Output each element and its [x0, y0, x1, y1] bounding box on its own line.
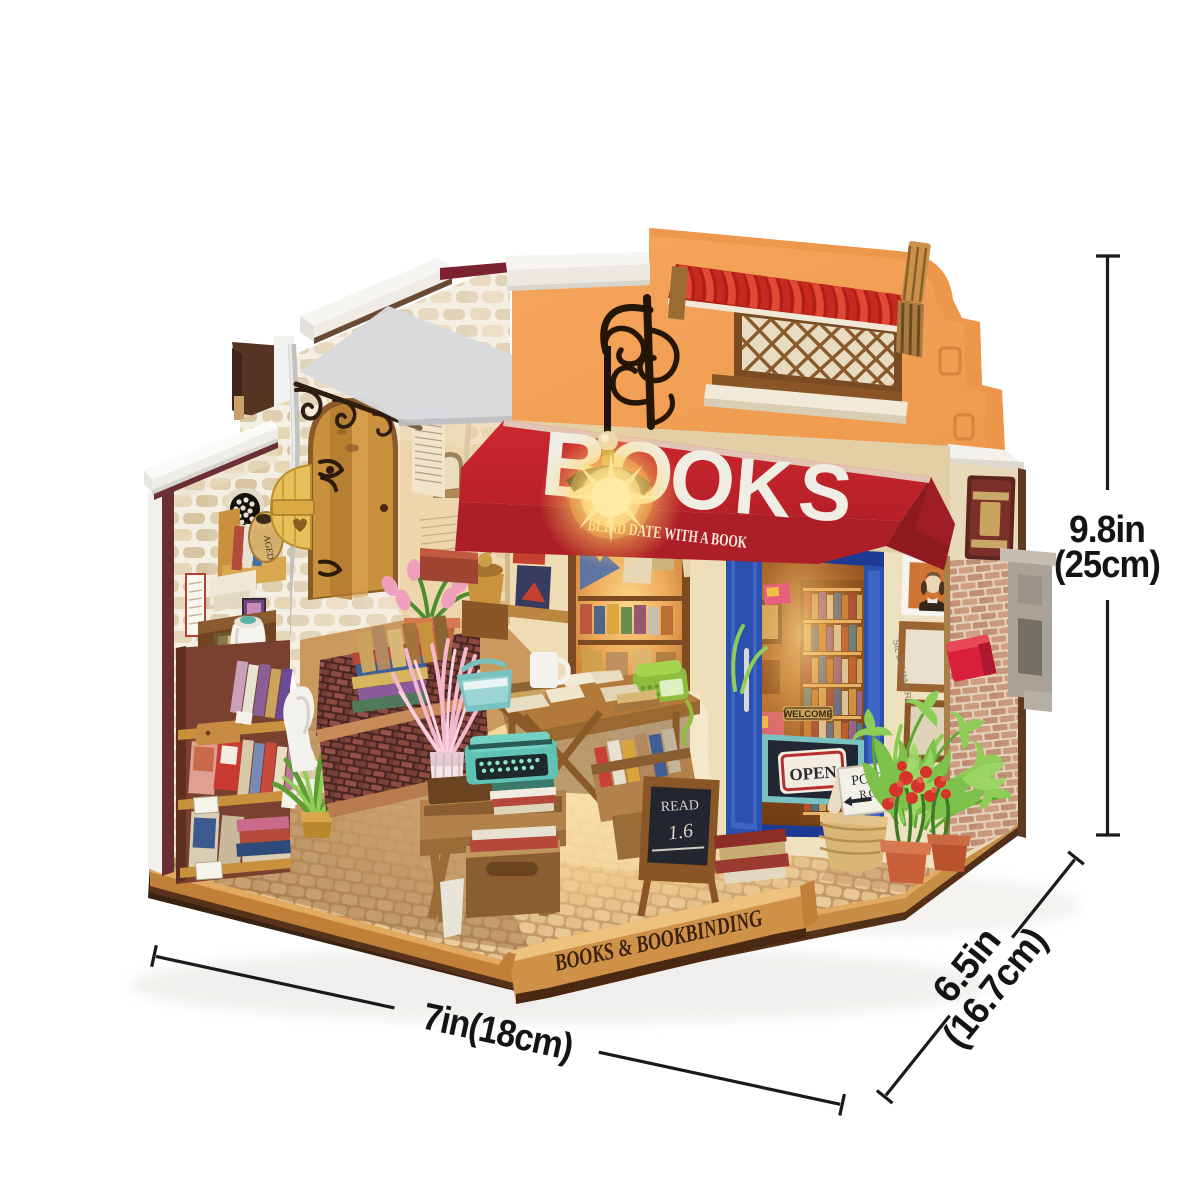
svg-text:OPEN: OPEN: [789, 762, 838, 784]
svg-text:K: K: [731, 441, 797, 535]
svg-text:READ: READ: [660, 798, 699, 815]
svg-text:1.6: 1.6: [667, 820, 694, 845]
svg-text:WELCOME: WELCOME: [783, 709, 833, 720]
svg-text:S: S: [795, 446, 856, 539]
svg-text:(25cm): (25cm): [1054, 544, 1160, 586]
